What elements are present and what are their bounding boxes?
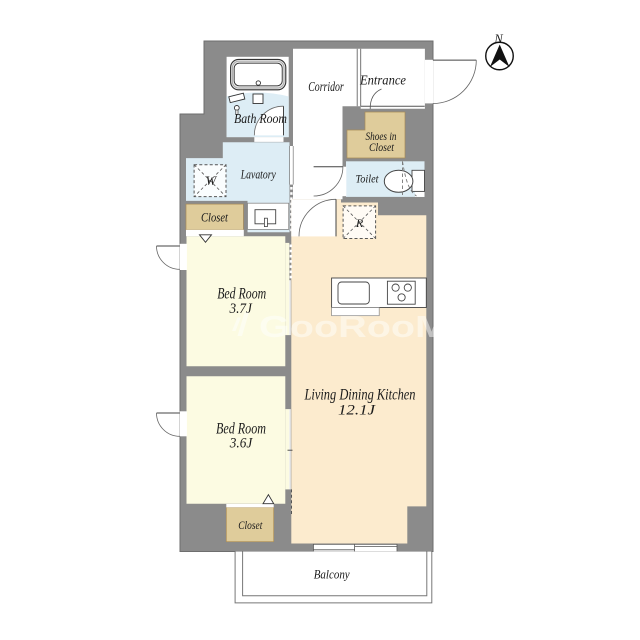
svg-text:Bath Room: Bath Room (234, 111, 287, 126)
svg-text:Corridor: Corridor (308, 80, 344, 95)
svg-text:W: W (206, 174, 218, 188)
svg-text:R: R (355, 216, 364, 230)
svg-text:Closet: Closet (369, 142, 395, 154)
svg-text:GooRooM: GooRooM (259, 309, 448, 344)
svg-text:Living Dining Kitchen: Living Dining Kitchen (304, 387, 416, 404)
svg-text:Closet: Closet (238, 520, 263, 532)
svg-text:3.6J: 3.6J (229, 436, 254, 452)
svg-text:Balcony: Balcony (314, 567, 350, 582)
svg-text:Entrance: Entrance (359, 74, 406, 89)
svg-text:Closet: Closet (201, 211, 228, 225)
svg-text:3.7J: 3.7J (229, 301, 254, 317)
svg-text:Lavatory: Lavatory (240, 166, 276, 181)
svg-text:Toilet: Toilet (356, 174, 380, 186)
svg-text:12.1J: 12.1J (338, 403, 376, 419)
